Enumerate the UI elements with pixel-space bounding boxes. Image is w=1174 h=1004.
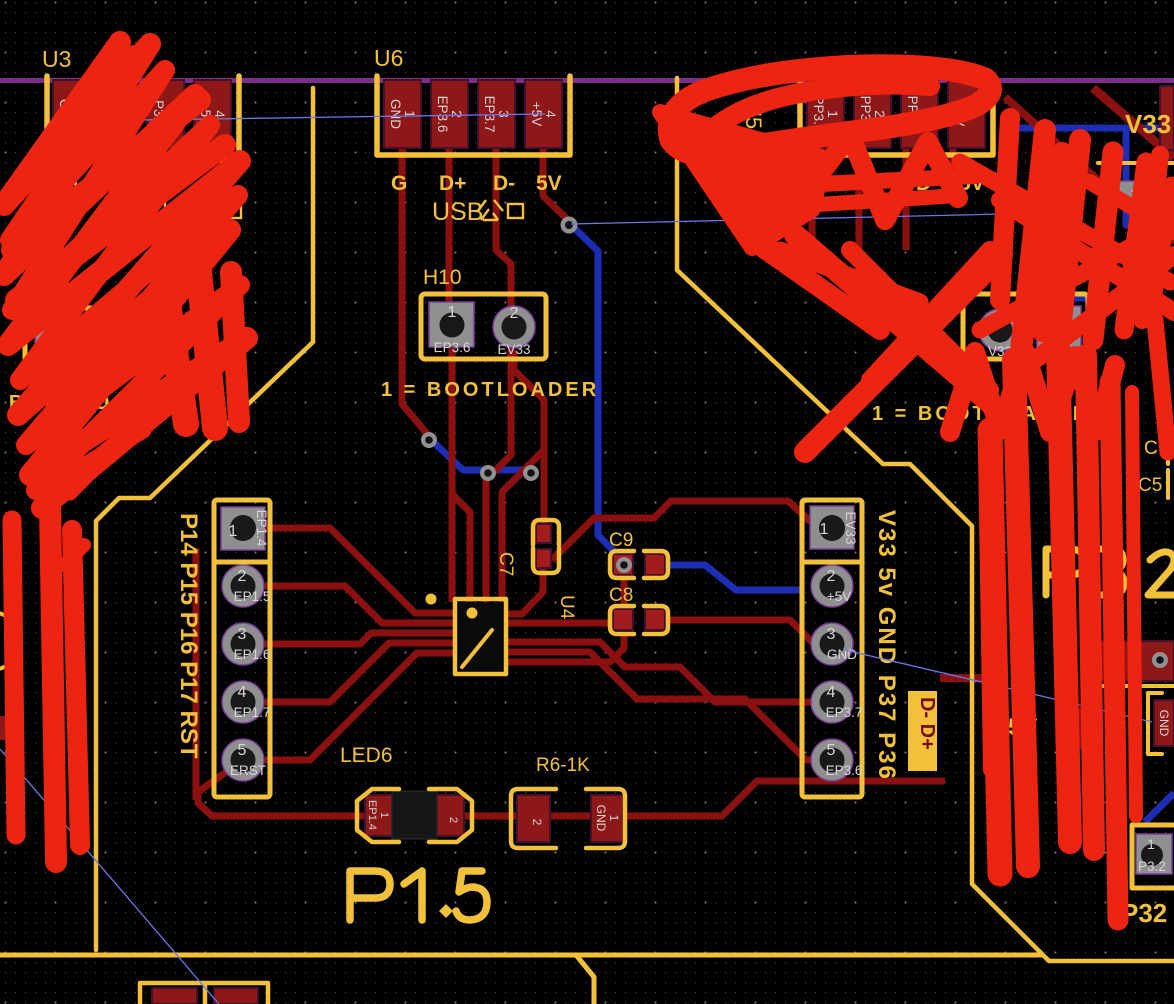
svg-text:R6-1K: R6-1K: [536, 755, 590, 776]
svg-text:U3: U3: [42, 46, 71, 72]
svg-text:1: 1: [607, 815, 621, 822]
svg-text:3: 3: [238, 626, 247, 643]
svg-text:U6: U6: [374, 45, 403, 71]
svg-text:1 = BOOTLOADER: 1 = BOOTLOADER: [381, 379, 599, 401]
svg-text:D+: D+: [439, 172, 466, 195]
svg-text:C7: C7: [495, 552, 516, 576]
svg-text:EP1.5: EP1.5: [234, 589, 271, 604]
svg-text:GND: GND: [1157, 710, 1171, 737]
svg-text:5: 5: [238, 742, 247, 759]
svg-text:1: 1: [229, 523, 238, 540]
svg-text:P3.2: P3.2: [1138, 859, 1166, 874]
svg-text:EP3.6: EP3.6: [826, 763, 863, 778]
svg-text:EV33: EV33: [497, 342, 530, 357]
svg-text:5: 5: [827, 742, 836, 759]
svg-text:EP3.6: EP3.6: [435, 96, 450, 133]
svg-text:U4: U4: [556, 595, 577, 620]
svg-text:1: 1: [1147, 836, 1155, 852]
svg-text:EP1.4: EP1.4: [254, 510, 269, 547]
svg-text:2: 2: [827, 568, 836, 585]
svg-text:G: G: [391, 172, 407, 195]
svg-text:C9: C9: [609, 530, 633, 551]
svg-text:GND: GND: [388, 99, 403, 129]
svg-text:2: 2: [238, 568, 247, 585]
svg-text:V33: V33: [1125, 109, 1171, 139]
svg-text:USB: USB: [432, 198, 483, 226]
svg-text:C8: C8: [609, 585, 633, 606]
svg-text:ERST: ERST: [230, 763, 266, 778]
svg-text:+5V: +5V: [827, 589, 851, 604]
svg-text:4: 4: [238, 684, 247, 701]
svg-text:D- D+: D- D+: [916, 697, 938, 750]
svg-text:EP1.7: EP1.7: [234, 705, 271, 720]
svg-text:2: 2: [447, 817, 459, 823]
svg-text:EP1.4: EP1.4: [366, 800, 378, 830]
svg-text:1: 1: [448, 304, 457, 321]
svg-text:EV33: EV33: [843, 511, 858, 544]
svg-text:V33 5v GND P37 P36: V33 5v GND P37 P36: [873, 510, 900, 781]
svg-text:2: 2: [449, 110, 464, 118]
svg-text:P14 P15 P16 P17 RST: P14 P15 P16 P17 RST: [175, 513, 202, 759]
svg-text:4: 4: [827, 684, 836, 701]
svg-text:C: C: [1144, 438, 1158, 459]
svg-text:EP3.6: EP3.6: [434, 340, 471, 355]
svg-text:EP3.7: EP3.7: [826, 705, 863, 720]
svg-text:1: 1: [820, 521, 829, 538]
svg-text:GND: GND: [594, 805, 608, 832]
svg-text:D-: D-: [493, 172, 515, 195]
svg-text:LED6: LED6: [340, 744, 393, 767]
svg-text:2: 2: [530, 819, 544, 826]
svg-text:4: 4: [543, 110, 558, 118]
svg-text:H10: H10: [423, 266, 462, 289]
svg-text:1: 1: [825, 110, 840, 118]
svg-text:5V: 5V: [536, 172, 562, 195]
svg-text:EP1.6: EP1.6: [234, 647, 271, 662]
svg-text:GND: GND: [827, 647, 857, 662]
svg-text:EP3.7: EP3.7: [482, 96, 497, 133]
svg-text:2: 2: [510, 305, 519, 322]
svg-text:1: 1: [378, 812, 390, 818]
svg-text:3: 3: [827, 626, 836, 643]
svg-text:C5: C5: [1138, 475, 1162, 496]
